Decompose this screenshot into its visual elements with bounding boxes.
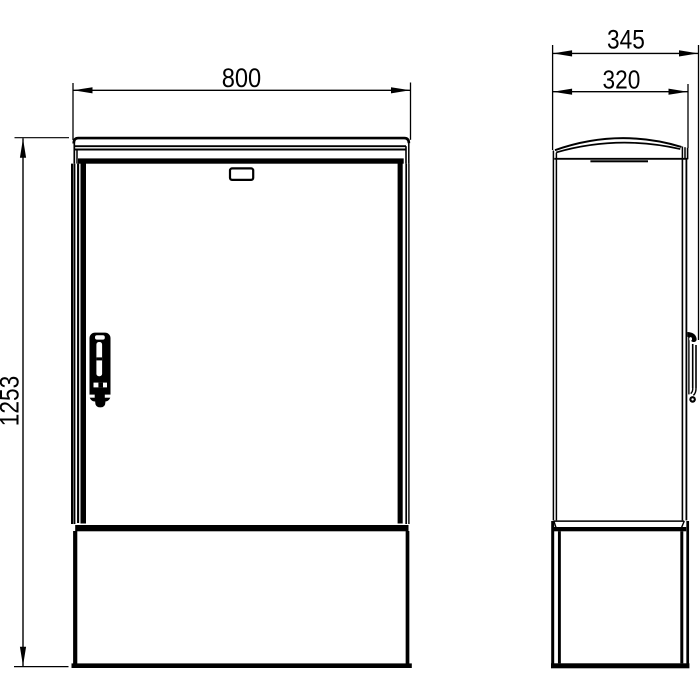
svg-text:345: 345: [607, 25, 645, 55]
svg-text:320: 320: [603, 65, 641, 95]
svg-text:800: 800: [222, 63, 262, 93]
svg-text:1253: 1253: [0, 376, 25, 427]
